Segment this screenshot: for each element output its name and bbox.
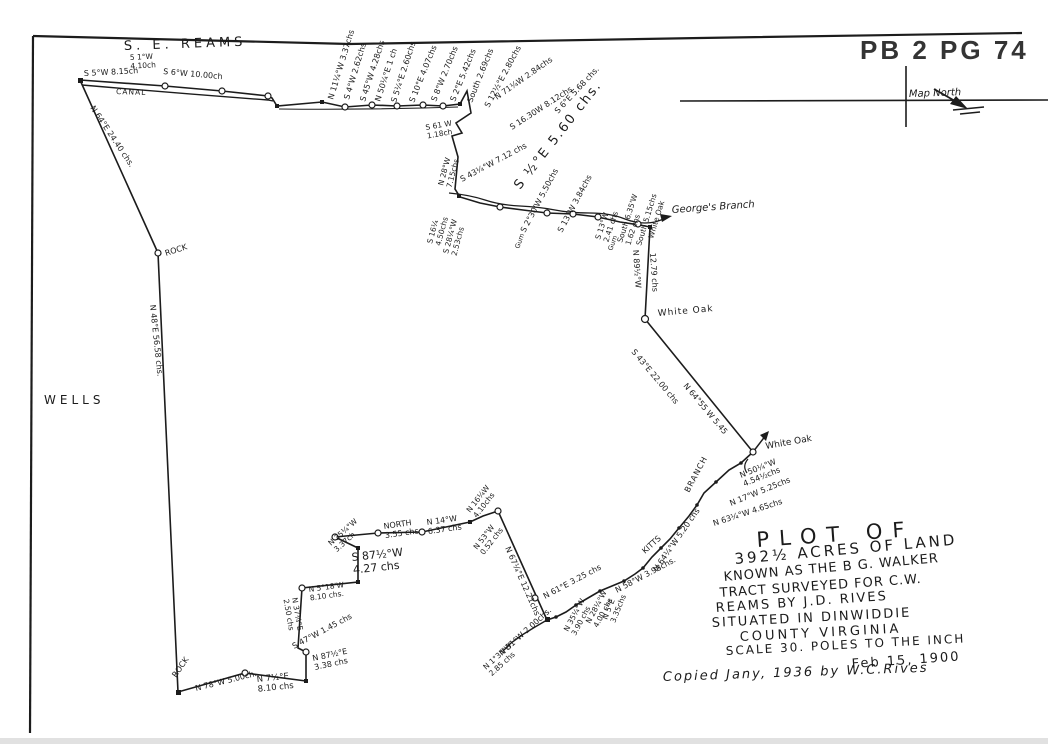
- place-label: BRANCH: [683, 455, 710, 494]
- canal-line-2: [279, 107, 458, 109]
- place-label: ROCK: [170, 655, 191, 679]
- bearing-annotation: Gum: [513, 232, 526, 249]
- bearing-annotation: N 64°E 24.40 chs.: [88, 104, 136, 169]
- bearing-annotation: N 7½°E8.10 chs: [256, 671, 295, 695]
- tract-boundary: [80, 80, 753, 692]
- survey-plat-drawing: PB 2 PG 74 Map North Copied Jany, 1936 b…: [0, 0, 1048, 746]
- scan-shadow-bottom: [0, 738, 1048, 744]
- bearing-annotation: N 78°W 5.00ch.: [194, 669, 257, 693]
- bearing-annotation: N 58°W 3.98chs.: [614, 555, 678, 594]
- bearing-annotation: N 14°W6.37 chs: [426, 513, 462, 536]
- bearing-annotations: S 5°W 8.15ch5 1°W4.10chS 6°W 10.00chN 64…: [84, 29, 792, 695]
- bearing-annotation: S 13°W 3.84chs: [556, 173, 594, 233]
- place-label: KITTS: [640, 534, 663, 556]
- plat-book-reference: PB 2 PG 74: [860, 35, 1029, 65]
- place-label: CANAL: [116, 87, 147, 97]
- bearing-annotation: S 43°E 22.00 chs: [629, 348, 680, 406]
- bearing-annotation: 12.79 chs: [648, 253, 660, 293]
- bearing-annotation: N 63¼°W 4.65chs: [712, 497, 784, 528]
- title-block: PLOT OF392½ ACRES OF LANDKNOWN AS THE B …: [711, 517, 965, 672]
- bearing-annotation: N 16¼W4.10chs: [464, 483, 498, 520]
- bearing-annotation: S 6°W 10.00ch: [163, 67, 223, 81]
- place-label: White Oak: [765, 434, 814, 452]
- page-border-left: [30, 36, 33, 733]
- bearing-annotation: S 87½°W4.27 chs: [351, 546, 405, 577]
- bearing-annotation: N 28°W7.15chs: [436, 156, 461, 189]
- map-north-label: Map North: [909, 87, 962, 100]
- map-north-compass: [680, 66, 1048, 127]
- white-oak-arrow-head: [760, 431, 769, 441]
- place-label: ROCK: [164, 242, 189, 258]
- bearing-annotation: 5 1°W4.10ch: [130, 52, 157, 71]
- bearing-annotation: S 61 W1.18ch: [425, 118, 455, 140]
- bearing-annotation: N 53°W0.52 chs: [471, 521, 505, 557]
- bearing-annotation: N 5°18'W8.10 chs.: [308, 580, 346, 602]
- bearing-annotation: NORTH3.55 chs: [383, 517, 419, 540]
- north-arrow-tail: [953, 107, 984, 114]
- place-label: WELLS: [44, 393, 104, 407]
- compass-baseline: [680, 100, 1048, 101]
- place-label: S. E. REAMS: [124, 35, 247, 54]
- corner-markers: [78, 78, 743, 695]
- bearing-annotation: N 87½°E3.38 chs: [312, 647, 351, 672]
- bearing-annotation: N 67¼°E 12.21chs: [503, 545, 542, 617]
- place-label: White Oak: [657, 304, 714, 319]
- bearing-annotation: N 64°55 W 5.45: [681, 382, 729, 437]
- survey-plat-page: PB 2 PG 74 Map North Copied Jany, 1936 b…: [0, 0, 1048, 746]
- place-label: George's Branch: [671, 199, 755, 216]
- bearing-annotation: N 89½°W: [631, 250, 643, 289]
